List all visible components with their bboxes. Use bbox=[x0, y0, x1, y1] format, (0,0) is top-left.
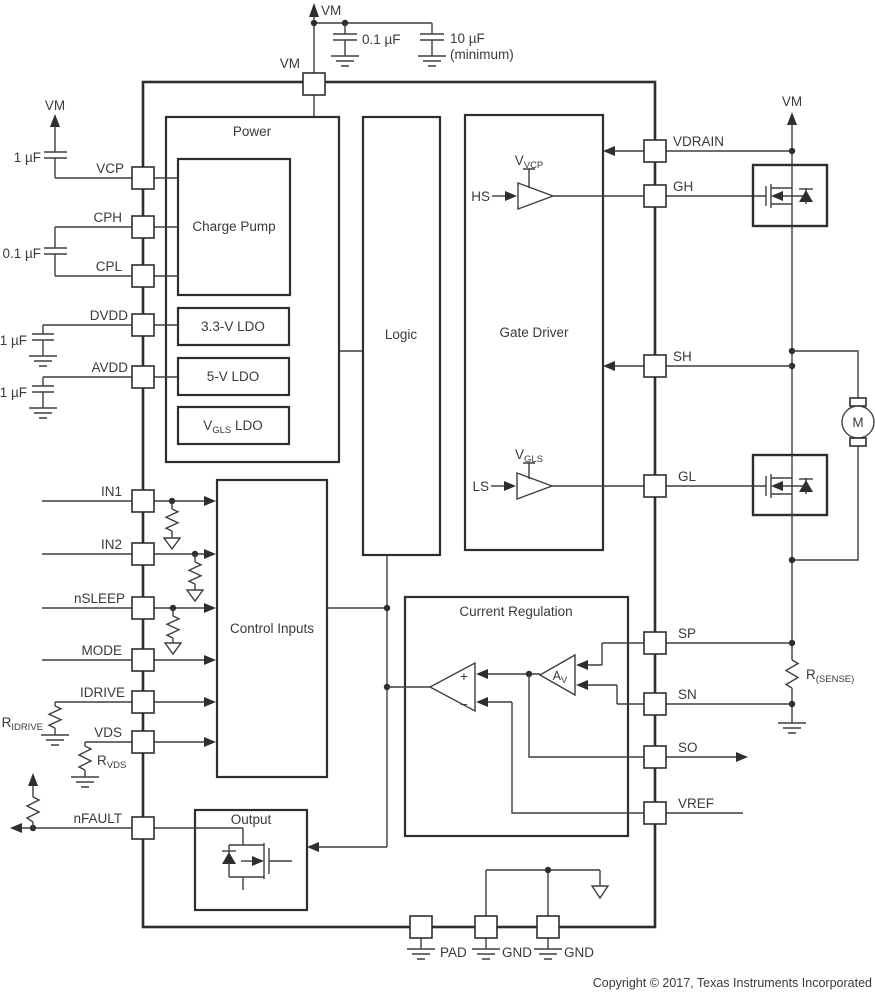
r-idrive-external: RIDRIVE bbox=[2, 702, 69, 745]
ground-symbol bbox=[331, 56, 359, 66]
pin-sh bbox=[644, 355, 666, 377]
motor-terminal-bottom bbox=[850, 438, 866, 446]
pin-nsleep bbox=[132, 597, 154, 619]
pin-pad bbox=[410, 916, 432, 938]
pin-gl bbox=[644, 475, 666, 497]
pin-vcp bbox=[132, 167, 154, 189]
vm-right-label: VM bbox=[782, 94, 802, 109]
pin-so-label: SO bbox=[678, 740, 698, 755]
pin-gh-label: GH bbox=[673, 179, 693, 194]
cap-vm1-label: 0.1 µF bbox=[362, 32, 401, 47]
pin-vdrain bbox=[644, 140, 666, 162]
pin-idrive bbox=[132, 691, 154, 713]
vm-top-label: VM bbox=[321, 3, 341, 18]
pin-gh bbox=[644, 185, 666, 207]
current-regulation-block bbox=[405, 597, 628, 836]
pin-cph-label: CPH bbox=[93, 210, 122, 225]
pin-vds-label: VDS bbox=[94, 725, 122, 740]
ls-label: LS bbox=[472, 479, 489, 494]
pin-in2-label: IN2 bbox=[101, 537, 122, 552]
pin-in2 bbox=[132, 543, 154, 565]
low-side-fet bbox=[666, 455, 827, 515]
pin-avdd bbox=[132, 366, 154, 388]
pin-mode bbox=[132, 649, 154, 671]
pin-sp-label: SP bbox=[678, 626, 696, 641]
block-diagram: VM 0.1 µF 10 µF (minimum) Power Charge P… bbox=[0, 0, 875, 994]
r-vds-label: RVDS bbox=[97, 753, 126, 771]
pin-cph bbox=[132, 216, 154, 238]
motor-terminal-top bbox=[850, 398, 866, 406]
pin-sn bbox=[644, 693, 666, 715]
pin-idrive-label: IDRIVE bbox=[80, 685, 125, 700]
pin-vref bbox=[644, 802, 666, 824]
pin-gnd2-label: GND bbox=[564, 945, 594, 960]
vm-top-supply: VM 0.1 µF 10 µF (minimum) bbox=[309, 3, 514, 73]
pin-nfault-label: nFAULT bbox=[73, 811, 122, 826]
pin-in1-label: IN1 bbox=[101, 484, 122, 499]
cap-vcp-label: 1 µF bbox=[14, 150, 41, 165]
pin-vm-label: VM bbox=[280, 56, 300, 71]
schematic-svg: VM 0.1 µF 10 µF (minimum) Power Charge P… bbox=[0, 0, 875, 994]
comparator-plus: + bbox=[460, 669, 468, 684]
pin-nsleep-label: nSLEEP bbox=[74, 591, 125, 606]
pin-gnd-1 bbox=[475, 916, 497, 938]
vm-left-label: VM bbox=[45, 98, 65, 113]
pin-cpl bbox=[132, 265, 154, 287]
pin-sp bbox=[644, 632, 666, 654]
current-regulation-label: Current Regulation bbox=[459, 604, 572, 619]
pin-gnd1-label: GND bbox=[502, 945, 532, 960]
charge-pump-label: Charge Pump bbox=[192, 219, 275, 234]
comparator-minus: − bbox=[460, 697, 468, 712]
pin-vcp-label: VCP bbox=[96, 161, 124, 176]
pin-cpl-label: CPL bbox=[96, 259, 123, 274]
pin-nfault bbox=[132, 817, 154, 839]
pin-dvdd bbox=[132, 314, 154, 336]
pin-sn-label: SN bbox=[678, 687, 697, 702]
control-inputs-label: Control Inputs bbox=[230, 621, 314, 636]
cap-dvdd-label: 1 µF bbox=[0, 333, 27, 348]
gate-driver-label: Gate Driver bbox=[499, 325, 569, 340]
output-label: Output bbox=[231, 812, 272, 827]
pin-so bbox=[644, 746, 666, 768]
ldo33-label: 3.3-V LDO bbox=[201, 319, 265, 334]
ldo5-label: 5-V LDO bbox=[207, 369, 260, 384]
hs-label: HS bbox=[471, 189, 490, 204]
high-side-fet bbox=[753, 165, 827, 226]
vdrain-sh-internal bbox=[603, 146, 644, 371]
r-idrive-label: RIDRIVE bbox=[2, 715, 43, 733]
ground-symbol bbox=[418, 56, 446, 66]
copyright-text: Copyright © 2017, Texas Instruments Inco… bbox=[593, 976, 872, 990]
r-vds-external: RVDS bbox=[71, 742, 126, 787]
cap-vm2-label: 10 µF bbox=[450, 31, 485, 46]
cap-vm2-note: (minimum) bbox=[450, 47, 514, 62]
vm-right-supply: VM bbox=[782, 94, 802, 165]
pin-sh-label: SH bbox=[673, 349, 692, 364]
pin-mode-label: MODE bbox=[82, 643, 123, 658]
pin-dvdd-label: DVDD bbox=[90, 308, 129, 323]
logic-label: Logic bbox=[385, 327, 418, 342]
pin-gl-label: GL bbox=[678, 469, 697, 484]
pin-gnd-2 bbox=[537, 916, 559, 938]
motor-label: M bbox=[852, 415, 863, 430]
pin-pad-label: PAD bbox=[440, 945, 467, 960]
pin-vm bbox=[303, 73, 325, 95]
pin-vref-label: VREF bbox=[678, 796, 714, 811]
cap-cp-label: 0.1 µF bbox=[2, 246, 41, 261]
power-label: Power bbox=[233, 124, 272, 139]
cap-avdd-label: 1 µF bbox=[0, 385, 27, 400]
r-sense-label: R(SENSE) bbox=[806, 667, 854, 685]
avdd-external: 1 µF bbox=[0, 377, 132, 418]
pin-vdrain-label: VDRAIN bbox=[673, 134, 724, 149]
pin-avdd-label: AVDD bbox=[91, 360, 128, 375]
pin-in1 bbox=[132, 490, 154, 512]
pin-vds bbox=[132, 731, 154, 753]
